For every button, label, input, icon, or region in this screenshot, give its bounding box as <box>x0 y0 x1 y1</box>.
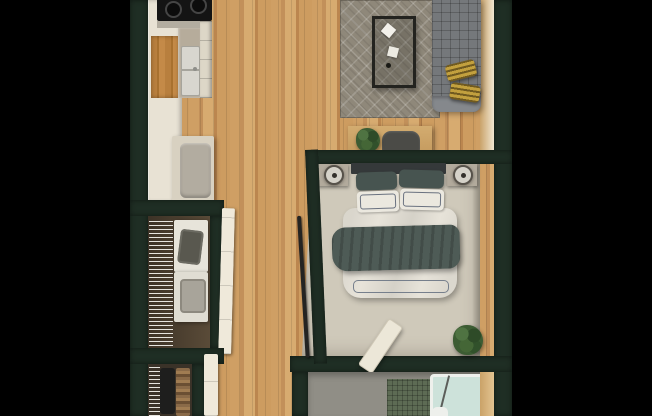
floorplan-canvas <box>0 0 652 416</box>
burner-left <box>165 1 182 18</box>
washer-unit <box>174 220 208 272</box>
console-plant <box>356 128 380 152</box>
closet-door <box>204 354 218 416</box>
pillow-trim <box>360 193 397 209</box>
table-tray-1 <box>381 23 396 38</box>
coffee-table <box>372 16 416 88</box>
pillow-white-right <box>400 188 445 210</box>
right-exterior-wall <box>494 0 512 416</box>
dryer-unit <box>174 272 208 322</box>
kitchen-wood-accent-cabinet <box>151 36 179 98</box>
laundry-basket <box>177 229 204 266</box>
refrigerator-door <box>180 143 211 198</box>
toilet-partial <box>432 407 448 416</box>
burner-right <box>190 0 207 14</box>
lamp-right <box>453 165 473 185</box>
sink-faucet <box>193 67 197 71</box>
table-tray-2 <box>387 46 399 58</box>
stove-cooktop <box>157 0 212 21</box>
kitchen-sink <box>181 46 200 96</box>
refrigerator <box>172 136 214 202</box>
laundry-wire-shelving <box>149 218 173 346</box>
bathroom-wood-face <box>480 372 494 416</box>
hanging-clothes-brown <box>176 368 190 416</box>
bed-foot-trim <box>353 280 449 293</box>
laundry-top-wall <box>130 200 224 216</box>
pillow-trim <box>403 192 441 208</box>
pillow-dark-left <box>356 171 398 190</box>
right-wall-inner-face <box>480 0 494 150</box>
kitchen-drawer-stack <box>200 21 212 98</box>
shower-tile <box>387 379 431 416</box>
bathroom-left-wall <box>292 372 308 416</box>
bedroom-plant <box>453 325 483 355</box>
lamp-left <box>324 165 344 185</box>
dryer-door <box>180 279 206 313</box>
throw-blanket <box>331 224 460 271</box>
pillow-white-left <box>357 190 400 212</box>
hanging-clothes-dark <box>160 368 175 414</box>
table-decor-dot <box>386 63 391 68</box>
closet-wire-shelving <box>149 366 160 416</box>
pillow-dark-right <box>399 169 444 188</box>
bedroom-top-wall <box>306 150 512 164</box>
